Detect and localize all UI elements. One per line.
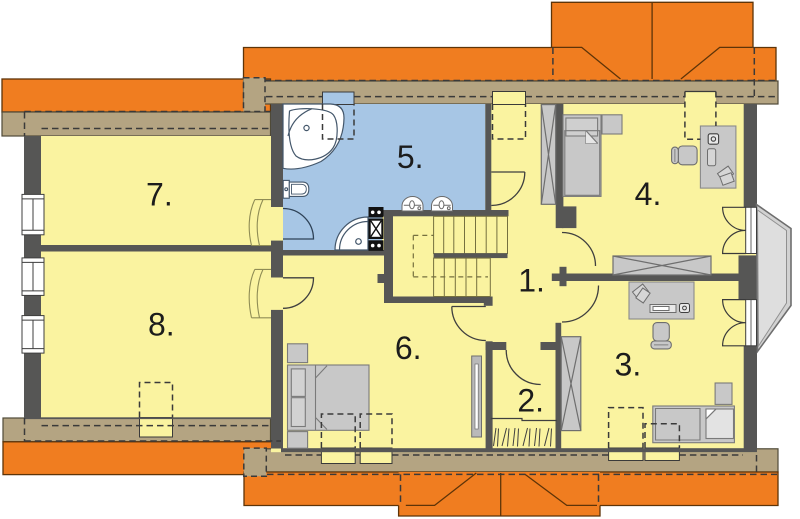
- svg-text:7.: 7.: [146, 176, 173, 212]
- svg-text:8.: 8.: [148, 306, 175, 342]
- svg-text:5.: 5.: [397, 139, 424, 175]
- svg-text:1.: 1.: [518, 263, 545, 299]
- svg-text:3.: 3.: [615, 346, 642, 382]
- svg-text:2.: 2.: [517, 383, 544, 419]
- svg-text:4.: 4.: [635, 176, 662, 212]
- svg-text:6.: 6.: [395, 330, 422, 366]
